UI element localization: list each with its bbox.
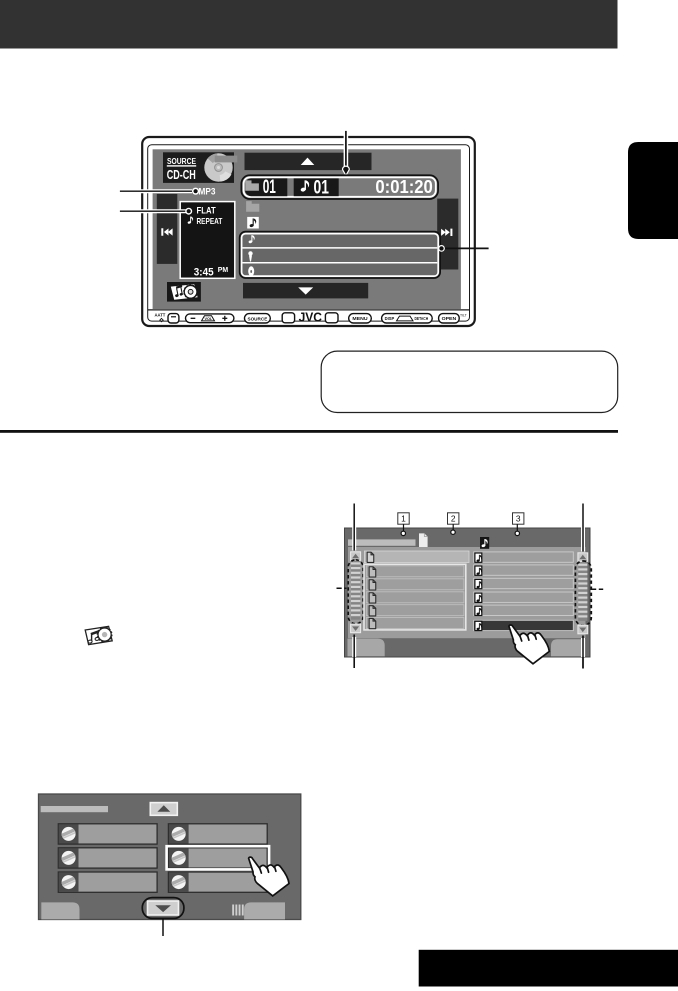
svg-text:REPEAT: REPEAT xyxy=(197,216,223,226)
svg-text:PM: PM xyxy=(218,267,229,274)
svg-text:CD-CH: CD-CH xyxy=(167,168,196,182)
svg-text:SOURCE: SOURCE xyxy=(248,316,268,321)
svg-text:0:01:20: 0:01:20 xyxy=(375,176,432,197)
svg-text:3:45: 3:45 xyxy=(194,267,214,279)
svg-text:01: 01 xyxy=(263,177,276,198)
svg-text:SOURCE: SOURCE xyxy=(167,157,197,166)
svg-text:TILT: TILT xyxy=(460,314,467,318)
svg-text:MP3: MP3 xyxy=(199,187,216,198)
svg-text:01: 01 xyxy=(314,178,330,199)
svg-text:JVC: JVC xyxy=(299,310,323,325)
svg-text:3: 3 xyxy=(516,514,521,524)
svg-text:FLAT: FLAT xyxy=(197,206,217,216)
svg-text:DETACH: DETACH xyxy=(415,316,429,321)
svg-text:2: 2 xyxy=(451,514,456,524)
svg-text:VOL: VOL xyxy=(205,317,213,321)
svg-text:1: 1 xyxy=(401,514,406,524)
svg-text:AATT: AATT xyxy=(155,312,166,317)
svg-text:DISP: DISP xyxy=(385,316,395,321)
svg-text:MENU: MENU xyxy=(352,316,368,321)
svg-text:OPEN: OPEN xyxy=(442,316,457,321)
